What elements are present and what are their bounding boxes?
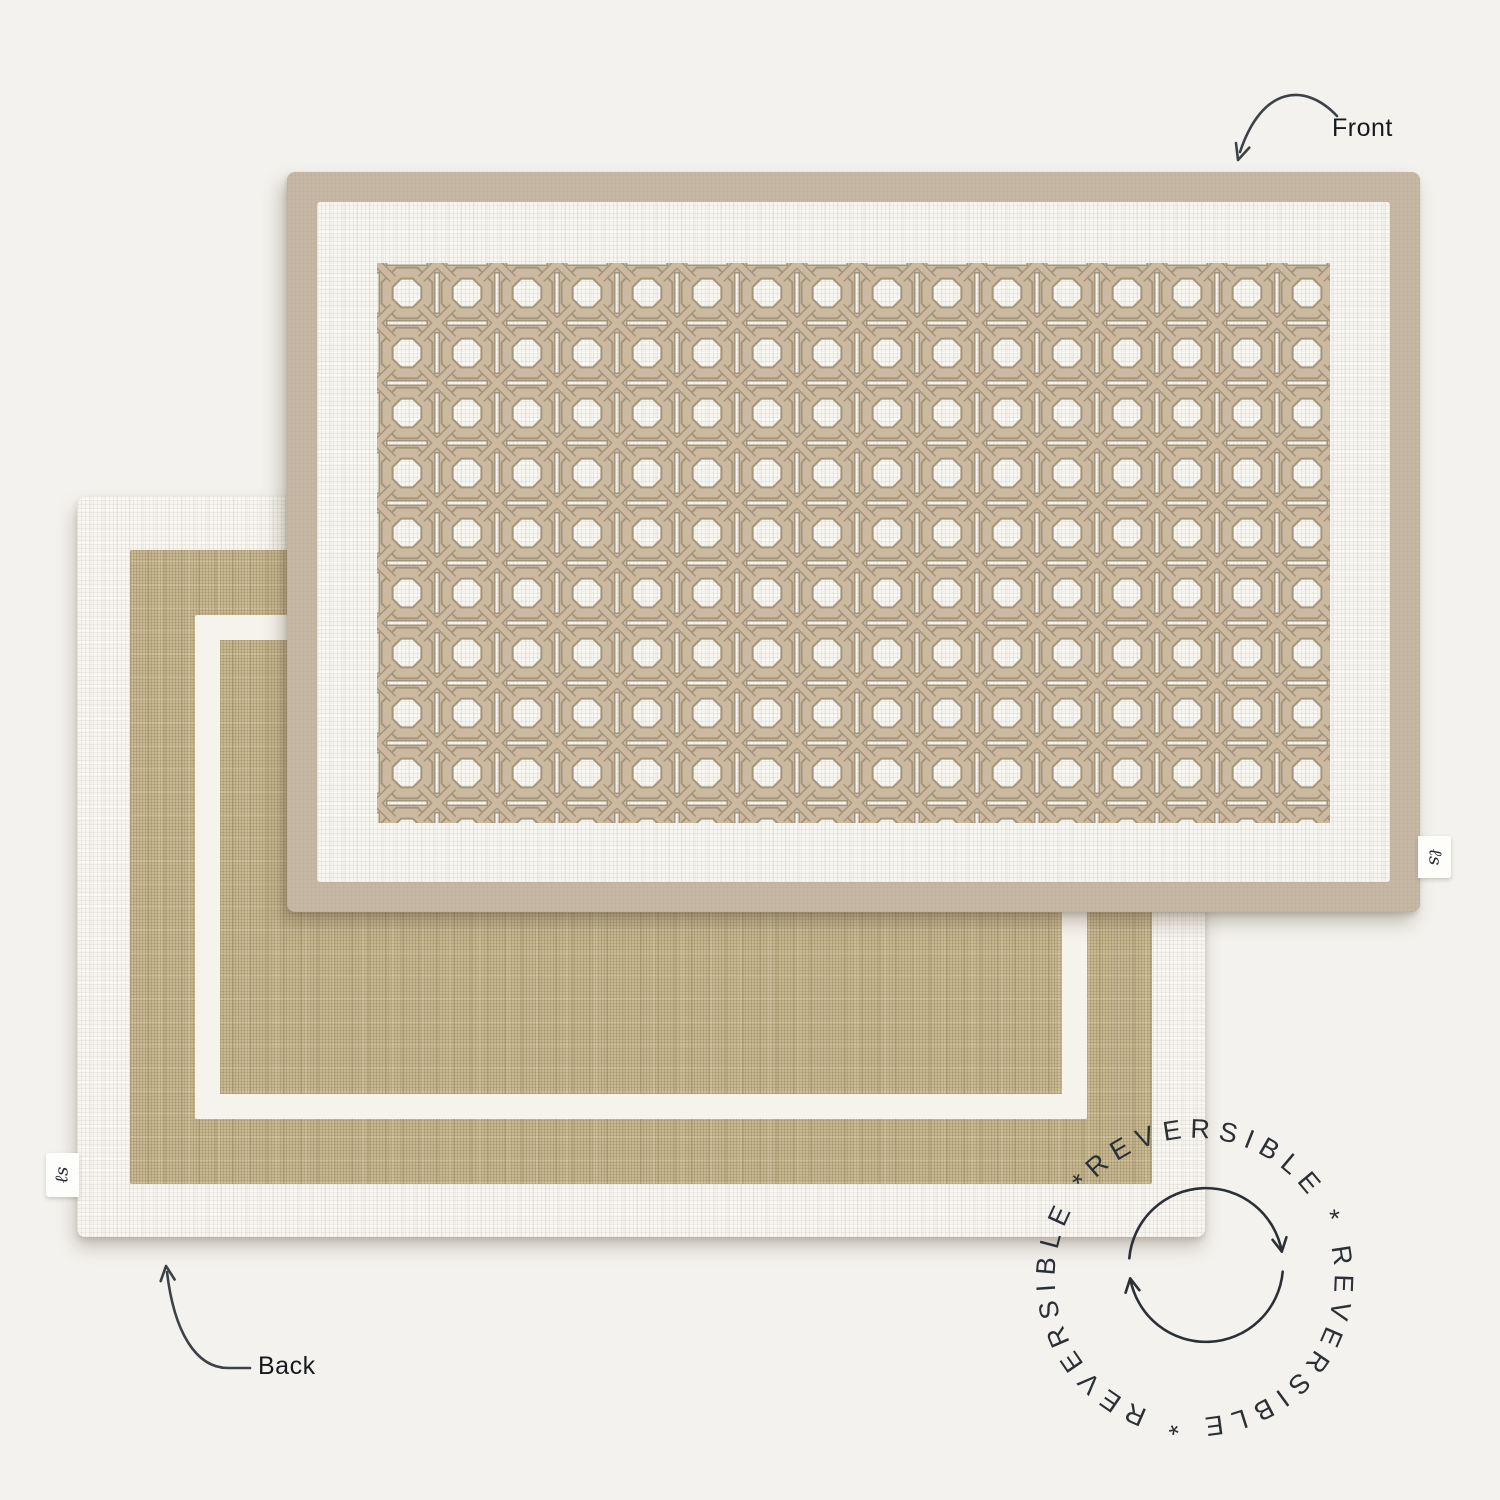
brand-monogram: ℓs	[1425, 849, 1443, 866]
reversible-badge: REVERSIBLE * REVERSIBLE * REVERSIBLE *	[1026, 1085, 1386, 1445]
front-placemat: ℓs	[287, 172, 1420, 912]
cycle-arrows-icon	[1126, 1188, 1287, 1342]
cane-weave-pattern	[377, 263, 1330, 823]
reversible-badge-text: REVERSIBLE * REVERSIBLE * REVERSIBLE *	[1030, 1114, 1358, 1442]
brand-monogram: ℓs	[53, 1167, 71, 1184]
back-label: Back	[258, 1352, 316, 1381]
product-scene: ℓs ℓs	[0, 0, 1500, 1500]
back-brand-tag: ℓs	[46, 1153, 79, 1197]
front-label: Front	[1332, 114, 1393, 143]
front-brand-tag: ℓs	[1418, 836, 1451, 878]
